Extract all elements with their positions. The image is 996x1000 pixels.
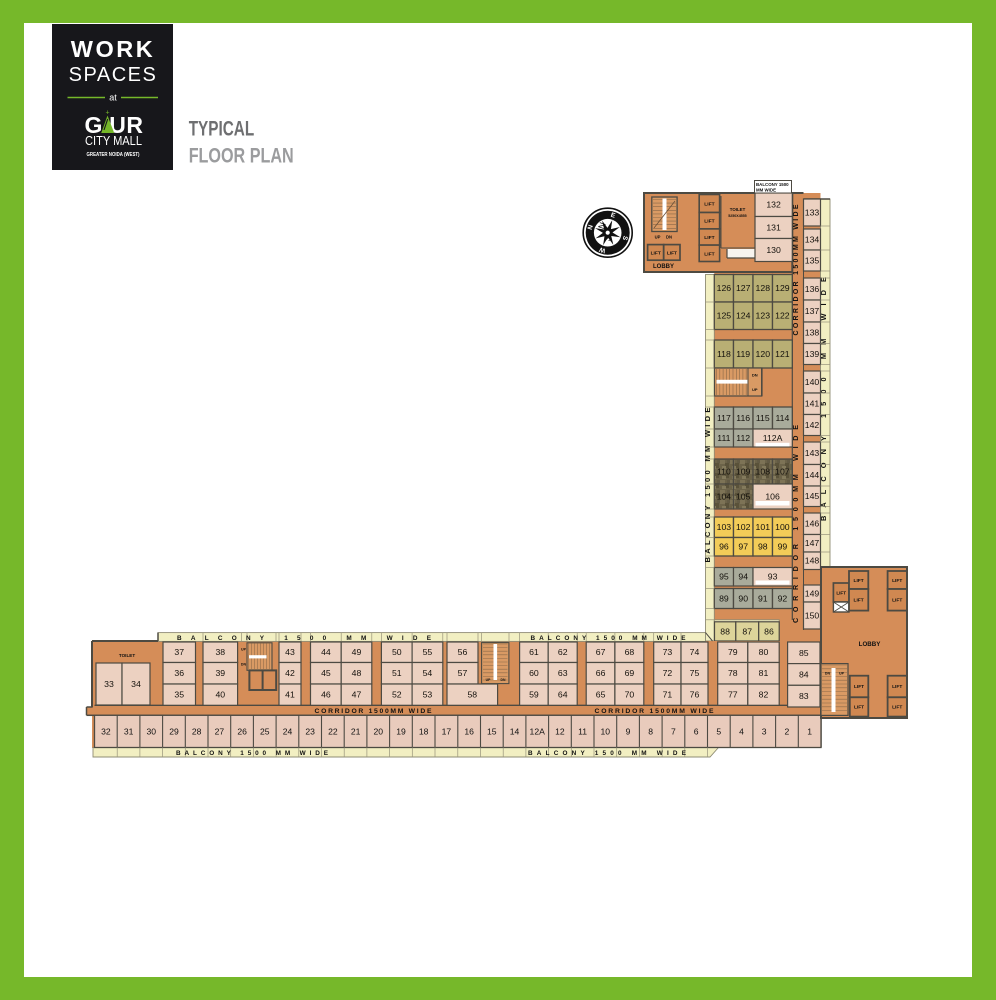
svg-text:19: 19	[396, 727, 406, 737]
svg-text:68: 68	[625, 647, 635, 657]
svg-text:110: 110	[717, 467, 731, 477]
svg-text:FLOOR PLAN: FLOOR PLAN	[189, 143, 294, 167]
svg-text:107: 107	[775, 467, 790, 477]
svg-text:124: 124	[736, 311, 751, 321]
svg-text:UP: UP	[486, 678, 491, 682]
svg-text:15: 15	[487, 727, 497, 737]
svg-text:94: 94	[738, 572, 748, 582]
svg-text:123: 123	[756, 311, 771, 321]
svg-text:23: 23	[305, 727, 315, 737]
svg-text:59: 59	[529, 690, 539, 700]
svg-text:119: 119	[736, 349, 750, 359]
svg-text:115: 115	[756, 413, 770, 423]
svg-text:79: 79	[728, 647, 738, 657]
svg-text:LIFT: LIFT	[704, 219, 714, 225]
svg-text:131: 131	[766, 223, 781, 233]
svg-text:83: 83	[799, 691, 809, 701]
svg-text:60: 60	[529, 668, 539, 678]
svg-text:80: 80	[759, 647, 769, 657]
svg-text:75: 75	[690, 668, 700, 678]
svg-text:LIFT: LIFT	[892, 684, 902, 690]
svg-text:106: 106	[765, 492, 780, 502]
svg-text:67: 67	[596, 647, 606, 657]
svg-text:92: 92	[778, 594, 788, 604]
svg-text:62: 62	[558, 647, 568, 657]
svg-text:102: 102	[736, 522, 751, 532]
svg-text:96: 96	[719, 542, 729, 552]
svg-text:LOBBY: LOBBY	[859, 641, 882, 648]
svg-text:LIFT: LIFT	[854, 578, 864, 584]
svg-text:87: 87	[742, 626, 752, 636]
svg-text:142: 142	[805, 420, 820, 430]
svg-text:65: 65	[596, 690, 606, 700]
svg-text:101: 101	[756, 522, 771, 532]
svg-text:88: 88	[720, 626, 730, 636]
svg-text:DN: DN	[501, 678, 506, 682]
svg-text:GREATER NOIDA (WEST): GREATER NOIDA (WEST)	[87, 152, 140, 158]
svg-text:TOILET: TOILET	[119, 653, 135, 658]
svg-text:UP: UP	[752, 387, 758, 392]
svg-text:112: 112	[736, 433, 750, 443]
svg-text:145: 145	[805, 491, 820, 501]
svg-text:132: 132	[766, 200, 781, 210]
svg-text:108: 108	[756, 467, 771, 477]
svg-text:109: 109	[736, 467, 751, 477]
svg-text:49: 49	[352, 647, 362, 657]
svg-text:78: 78	[728, 668, 738, 678]
svg-text:LIFT: LIFT	[892, 578, 902, 584]
svg-text:22: 22	[328, 727, 338, 737]
svg-text:TYPICAL: TYPICAL	[189, 117, 255, 141]
svg-text:144: 144	[805, 470, 820, 480]
svg-text:129: 129	[775, 283, 790, 293]
svg-text:70: 70	[625, 690, 635, 700]
svg-text:85: 85	[799, 648, 809, 658]
svg-text:112A: 112A	[763, 433, 783, 443]
svg-text:at: at	[109, 93, 117, 103]
svg-text:121: 121	[775, 349, 790, 359]
svg-text:97: 97	[738, 542, 748, 552]
svg-text:77: 77	[728, 690, 738, 700]
svg-text:84: 84	[799, 669, 809, 679]
svg-text:12A: 12A	[530, 727, 546, 737]
svg-text:104: 104	[717, 492, 732, 502]
svg-text:47: 47	[352, 690, 362, 700]
svg-text:91: 91	[758, 594, 768, 604]
svg-text:125: 125	[717, 311, 732, 321]
svg-text:71: 71	[663, 690, 673, 700]
svg-text:137: 137	[805, 306, 820, 316]
svg-text:12: 12	[555, 727, 565, 737]
svg-text:41: 41	[285, 690, 295, 700]
svg-text:86: 86	[764, 626, 774, 636]
svg-text:UP: UP	[655, 235, 661, 240]
svg-text:116: 116	[736, 413, 750, 423]
svg-text:82: 82	[759, 690, 769, 700]
svg-text:36: 36	[174, 668, 184, 678]
svg-text:56: 56	[458, 647, 468, 657]
svg-text:130: 130	[766, 245, 781, 255]
svg-text:LIFT: LIFT	[854, 598, 864, 604]
svg-text:58: 58	[467, 690, 477, 700]
svg-text:98: 98	[758, 542, 768, 552]
svg-text:LIFT: LIFT	[704, 251, 714, 257]
svg-text:25: 25	[260, 727, 270, 737]
svg-text:32: 32	[101, 727, 111, 737]
svg-text:45: 45	[321, 668, 331, 678]
svg-text:BALCONY 1500: BALCONY 1500	[756, 182, 789, 187]
svg-text:103: 103	[717, 522, 732, 532]
svg-text:72: 72	[663, 668, 673, 678]
svg-text:73: 73	[663, 647, 673, 657]
svg-text:140: 140	[805, 377, 820, 387]
svg-text:29: 29	[169, 727, 179, 737]
svg-text:LIFT: LIFT	[651, 251, 661, 257]
svg-text:16: 16	[464, 727, 474, 737]
svg-text:74: 74	[690, 647, 700, 657]
svg-text:100: 100	[775, 522, 790, 532]
svg-text:37: 37	[174, 647, 184, 657]
svg-text:63: 63	[558, 668, 568, 678]
svg-text:17: 17	[442, 727, 452, 737]
svg-text:69: 69	[625, 668, 635, 678]
svg-text:55: 55	[423, 647, 433, 657]
svg-text:27: 27	[215, 727, 225, 737]
svg-text:117: 117	[717, 413, 731, 423]
svg-text:33: 33	[104, 679, 114, 689]
svg-text:DN: DN	[752, 373, 758, 378]
svg-text:46: 46	[321, 690, 331, 700]
svg-text:9: 9	[626, 727, 631, 737]
svg-text:SPACES: SPACES	[69, 64, 158, 86]
svg-text:89: 89	[719, 594, 729, 604]
svg-text:105: 105	[736, 492, 751, 502]
svg-text:40: 40	[215, 690, 225, 700]
svg-text:133: 133	[805, 208, 820, 218]
svg-text:43: 43	[285, 647, 295, 657]
svg-text:150: 150	[805, 611, 820, 621]
svg-text:50: 50	[392, 647, 402, 657]
svg-text:44: 44	[321, 647, 331, 657]
svg-text:136: 136	[805, 284, 820, 294]
svg-text:5250X4555: 5250X4555	[728, 214, 746, 218]
svg-text:DN: DN	[825, 672, 831, 676]
svg-text:135: 135	[805, 256, 820, 266]
svg-text:111: 111	[717, 433, 730, 443]
svg-text:CORRIDOR 1500MM WIDE: CORRIDOR 1500MM WIDE	[595, 708, 714, 715]
svg-text:MM WIDE: MM WIDE	[756, 188, 776, 193]
svg-text:57: 57	[458, 668, 468, 678]
svg-text:149: 149	[805, 589, 820, 599]
svg-text:128: 128	[756, 283, 771, 293]
svg-text:1: 1	[807, 727, 812, 737]
svg-text:CORRIDOR 1500MM WIDE: CORRIDOR 1500MM WIDE	[315, 708, 432, 715]
svg-text:53: 53	[423, 690, 433, 700]
svg-text:147: 147	[805, 538, 820, 548]
svg-text:42: 42	[285, 668, 295, 678]
svg-text:99: 99	[778, 542, 788, 552]
svg-text:WORK: WORK	[71, 36, 155, 62]
svg-text:143: 143	[805, 448, 820, 458]
svg-text:LIFT: LIFT	[836, 591, 846, 596]
svg-text:134: 134	[805, 235, 820, 245]
svg-text:UP: UP	[241, 648, 247, 652]
svg-text:126: 126	[717, 283, 732, 293]
svg-text:14: 14	[510, 727, 520, 737]
svg-text:LIFT: LIFT	[704, 202, 714, 208]
svg-text:DN: DN	[241, 663, 247, 667]
svg-text:UP: UP	[839, 672, 845, 676]
svg-text:26: 26	[237, 727, 247, 737]
svg-text:28: 28	[192, 727, 202, 737]
svg-text:LIFT: LIFT	[892, 598, 902, 604]
svg-text:81: 81	[759, 668, 769, 678]
svg-text:CITY MALL: CITY MALL	[85, 133, 142, 148]
svg-text:66: 66	[596, 668, 606, 678]
svg-text:10: 10	[601, 727, 611, 737]
svg-text:38: 38	[215, 647, 225, 657]
svg-text:LIFT: LIFT	[667, 251, 677, 257]
svg-text:48: 48	[352, 668, 362, 678]
svg-text:2: 2	[785, 727, 790, 737]
svg-text:61: 61	[529, 647, 539, 657]
svg-text:138: 138	[805, 328, 820, 338]
svg-text:6: 6	[694, 727, 699, 737]
svg-text:30: 30	[147, 727, 157, 737]
svg-text:11: 11	[578, 727, 587, 737]
svg-text:64: 64	[558, 690, 568, 700]
svg-text:LOBBY: LOBBY	[653, 264, 674, 270]
svg-text:118: 118	[717, 349, 731, 359]
svg-text:LIFT: LIFT	[854, 705, 864, 711]
svg-text:+: +	[106, 110, 110, 117]
svg-text:8: 8	[648, 727, 653, 737]
svg-text:39: 39	[215, 668, 225, 678]
svg-text:120: 120	[756, 349, 771, 359]
svg-text:TOILET: TOILET	[730, 207, 746, 212]
svg-text:90: 90	[738, 594, 748, 604]
svg-text:114: 114	[775, 413, 789, 423]
svg-text:DN: DN	[666, 235, 672, 240]
svg-text:20: 20	[374, 727, 384, 737]
svg-text:146: 146	[805, 519, 820, 529]
svg-text:21: 21	[351, 727, 361, 737]
svg-text:4: 4	[739, 727, 744, 737]
svg-text:34: 34	[131, 679, 141, 689]
svg-text:7: 7	[671, 727, 676, 737]
svg-text:LIFT: LIFT	[892, 705, 902, 711]
svg-text:24: 24	[283, 727, 293, 737]
svg-text:141: 141	[805, 399, 820, 409]
svg-text:3: 3	[762, 727, 767, 737]
svg-text:122: 122	[775, 311, 790, 321]
svg-text:148: 148	[805, 556, 820, 566]
svg-text:31: 31	[124, 727, 134, 737]
svg-text:LIFT: LIFT	[704, 235, 714, 241]
svg-text:54: 54	[423, 668, 433, 678]
svg-text:76: 76	[690, 690, 700, 700]
svg-text:18: 18	[419, 727, 429, 737]
svg-text:LIFT: LIFT	[854, 684, 864, 690]
svg-text:51: 51	[392, 668, 402, 678]
svg-text:35: 35	[174, 690, 184, 700]
svg-text:5: 5	[716, 727, 721, 737]
svg-text:93: 93	[768, 572, 778, 582]
svg-text:139: 139	[805, 349, 820, 359]
svg-text:95: 95	[719, 572, 729, 582]
svg-text:52: 52	[392, 690, 402, 700]
svg-text:127: 127	[736, 283, 751, 293]
